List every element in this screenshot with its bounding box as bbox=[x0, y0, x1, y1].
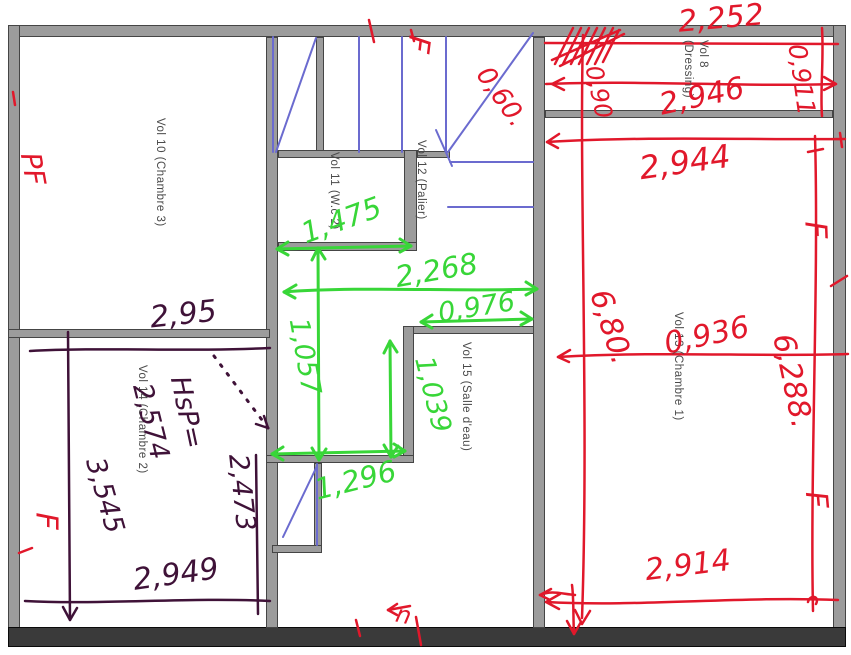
wall-mid-right bbox=[533, 37, 545, 628]
wall-lower-stair-stub bbox=[272, 545, 322, 553]
wall-salle-left bbox=[403, 326, 414, 463]
measure-purple-295: 2,95 bbox=[149, 297, 219, 334]
measure-red-2944: 2,944 bbox=[637, 140, 732, 184]
wall-wc-top bbox=[278, 150, 418, 158]
measure-purple-2473: 2,473 bbox=[224, 453, 259, 533]
wall-chambre3-chambre2-divider bbox=[8, 329, 270, 338]
measure-green-1057: 1,057 bbox=[285, 316, 325, 397]
window-mark-f-bottom-left: F bbox=[31, 512, 61, 529]
room-label-vol12: Vol 12 (Palier) bbox=[413, 140, 428, 272]
note-hsp: HsP= bbox=[166, 374, 208, 451]
room-label-vol10: Vol 10 (Chambre 3) bbox=[152, 118, 167, 243]
wall-wc-bottom bbox=[278, 242, 417, 251]
door-window-mark-pf: PF bbox=[16, 150, 49, 187]
measure-red-680: 6,80. bbox=[584, 286, 636, 368]
floor-plan: Vol 10 (Chambre 3) Vol 11 (W.c 2) Vol 12… bbox=[0, 0, 851, 655]
measure-green-2268: 2,268 bbox=[393, 249, 480, 292]
measure-red-060: 0,60. bbox=[471, 62, 530, 131]
measure-green-1296: 1,296 bbox=[312, 456, 400, 504]
wall-outer-right bbox=[833, 25, 846, 635]
eta-mark: n bbox=[394, 602, 414, 629]
window-mark-f-right-lower: F bbox=[800, 490, 831, 510]
wall-outer-bottom bbox=[8, 627, 846, 647]
wall-outer-left bbox=[8, 25, 20, 630]
wall-salle-top bbox=[403, 326, 538, 334]
measure-red-2914: 2,914 bbox=[643, 546, 732, 586]
window-mark-f-right-upper: F bbox=[799, 221, 830, 239]
window-mark-f-top: F bbox=[402, 34, 434, 55]
measure-purple-3545: 3,545 bbox=[81, 455, 128, 537]
measure-green-0976: 0,976 bbox=[436, 288, 517, 327]
measure-green-1475: 1,475 bbox=[298, 193, 386, 249]
measure-green-1039: 1,039 bbox=[410, 354, 455, 436]
room-label-vol15: Vol 15 (Salle d'eau) bbox=[458, 342, 473, 482]
measure-red-0911: 0,911 bbox=[784, 42, 819, 116]
measure-red-6288: 6,288. bbox=[767, 331, 816, 431]
measure-purple-2949: 2,949 bbox=[131, 554, 220, 596]
wall-stair-divider bbox=[316, 37, 324, 155]
measure-red-2252: 2,252 bbox=[677, 0, 765, 37]
